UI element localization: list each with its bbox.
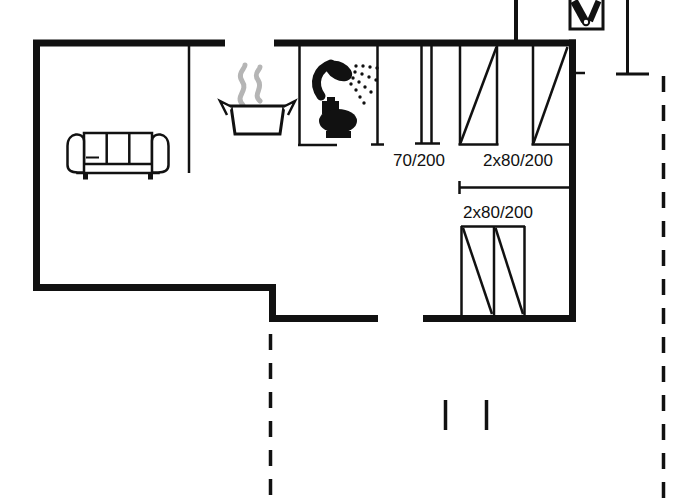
grill-icon: [570, 0, 603, 29]
toilet-icon: [319, 97, 357, 138]
lower-panel2-diagonal: [496, 228, 524, 314]
upper-window-panels: [459, 46, 570, 145]
lower-window-panels: [461, 226, 525, 316]
pot-body: [231, 106, 284, 134]
grill-ring: [583, 19, 589, 25]
label-upper-window: 2x80/200: [483, 151, 553, 170]
toilet-base: [326, 131, 351, 138]
sofa-icon: [68, 133, 169, 180]
floor-plan-drawing: 70/200 2x80/200 2x80/200: [0, 0, 700, 500]
pot-handle-right: [283, 101, 295, 115]
door-opening-70: [415, 46, 440, 144]
steam-line-2: [256, 67, 260, 101]
shower-icon: [316, 57, 378, 105]
steam-line-1: [240, 65, 245, 105]
label-door-opening: 70/200: [393, 151, 445, 170]
sofa-arm-right: [152, 134, 169, 172]
shower-spray-dots: [349, 64, 378, 104]
lower-panel1-diagonal: [463, 228, 492, 314]
pot-handle-left: [220, 101, 232, 115]
cooking-pot-icon: [220, 65, 295, 134]
floor-plan: 70/200 2x80/200 2x80/200: [0, 0, 700, 500]
sofa-arm-left: [68, 134, 85, 172]
sofa-back: [84, 133, 152, 164]
upper-panel2-diagonal: [534, 47, 568, 143]
upper-panel1-diagonal: [461, 47, 497, 143]
toilet-bowl: [319, 109, 357, 133]
label-lower-window: 2x80/200: [463, 203, 533, 222]
